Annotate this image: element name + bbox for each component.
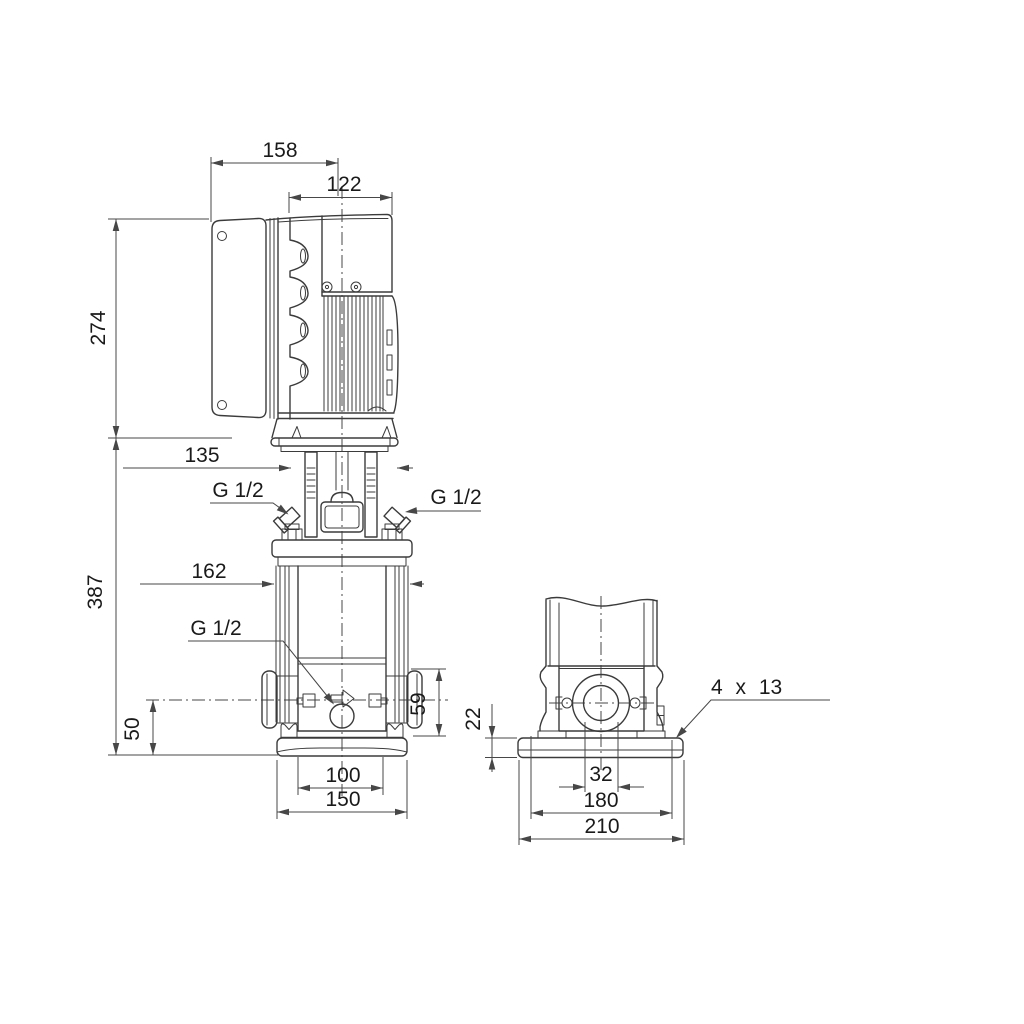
dim-port-height: 59 [407,669,446,736]
callout-gauge-port-right: G 1/2 [405,486,482,515]
terminal-screw-left [322,282,332,292]
drawing-canvas: 158 122 274 387 135 [0,0,1024,1024]
dim-drain-height: 50 [121,700,156,755]
dim-motor-height: 274 [87,219,232,438]
callout-drain-port-label: G 1/2 [190,617,241,640]
foot-pad-left [538,731,566,738]
foot-pad-right [637,731,665,738]
vent-slot [387,380,392,395]
dim-clamp-width: 135 [123,444,413,471]
dim-clamp-width-label: 135 [184,444,219,467]
vent-slot [387,330,392,345]
head-bolt-right [382,529,402,540]
dim-overall-width: 158 [211,139,338,222]
motor-clamp [271,419,398,452]
dim-drain-height-label: 50 [121,717,144,740]
head-bolt-left [282,529,302,540]
dim-chamber-width-label: 162 [191,560,226,583]
motor-fins [278,296,398,419]
dim-foot-hole-spacing-label: 100 [325,764,360,787]
gland-cover-edge [290,218,308,419]
callout-mounting-holes-label: 4 x 13 [711,676,782,699]
guard-post-left [305,452,317,537]
frequency-converter [266,215,392,420]
cover-screw-top [218,232,227,241]
side-view [146,186,448,796]
dim-port-height-label: 59 [407,692,430,715]
pump-dimensional-drawing: 158 122 274 387 135 [0,0,1024,1024]
front-view [518,596,683,770]
staybolts-left [276,566,289,722]
control-box [212,218,274,418]
guard-post-right [365,452,377,537]
dim-motor-width-label: 122 [326,173,361,196]
dim-base-depth-label: 150 [325,788,360,811]
dim-motor-height-label: 274 [87,310,110,345]
callout-gauge-port-left-label: G 1/2 [212,479,263,502]
dim-overall-width-label: 158 [262,139,297,162]
dim-pump-height-label: 387 [84,574,107,609]
dim-chamber-width: 162 [140,560,424,587]
cover-screw-bottom [218,401,227,410]
dim-port-offset-label: 32 [589,763,612,786]
callout-gauge-port-left: G 1/2 [210,479,291,517]
dim-motor-width: 122 [289,173,392,215]
callout-gauge-port-right-label: G 1/2 [430,486,481,509]
dim-base-height-label: 22 [462,707,485,730]
dim-bolt-hole-spacing-label: 180 [583,789,618,812]
vent-slot [387,355,392,370]
dim-base-width-label: 210 [584,815,619,838]
callout-mounting-holes: 4 x 13 [673,676,830,740]
dim-base-height: 22 [462,704,517,772]
foot-right [387,724,403,738]
foot-left [281,724,297,738]
terminal-screw-right [351,282,361,292]
